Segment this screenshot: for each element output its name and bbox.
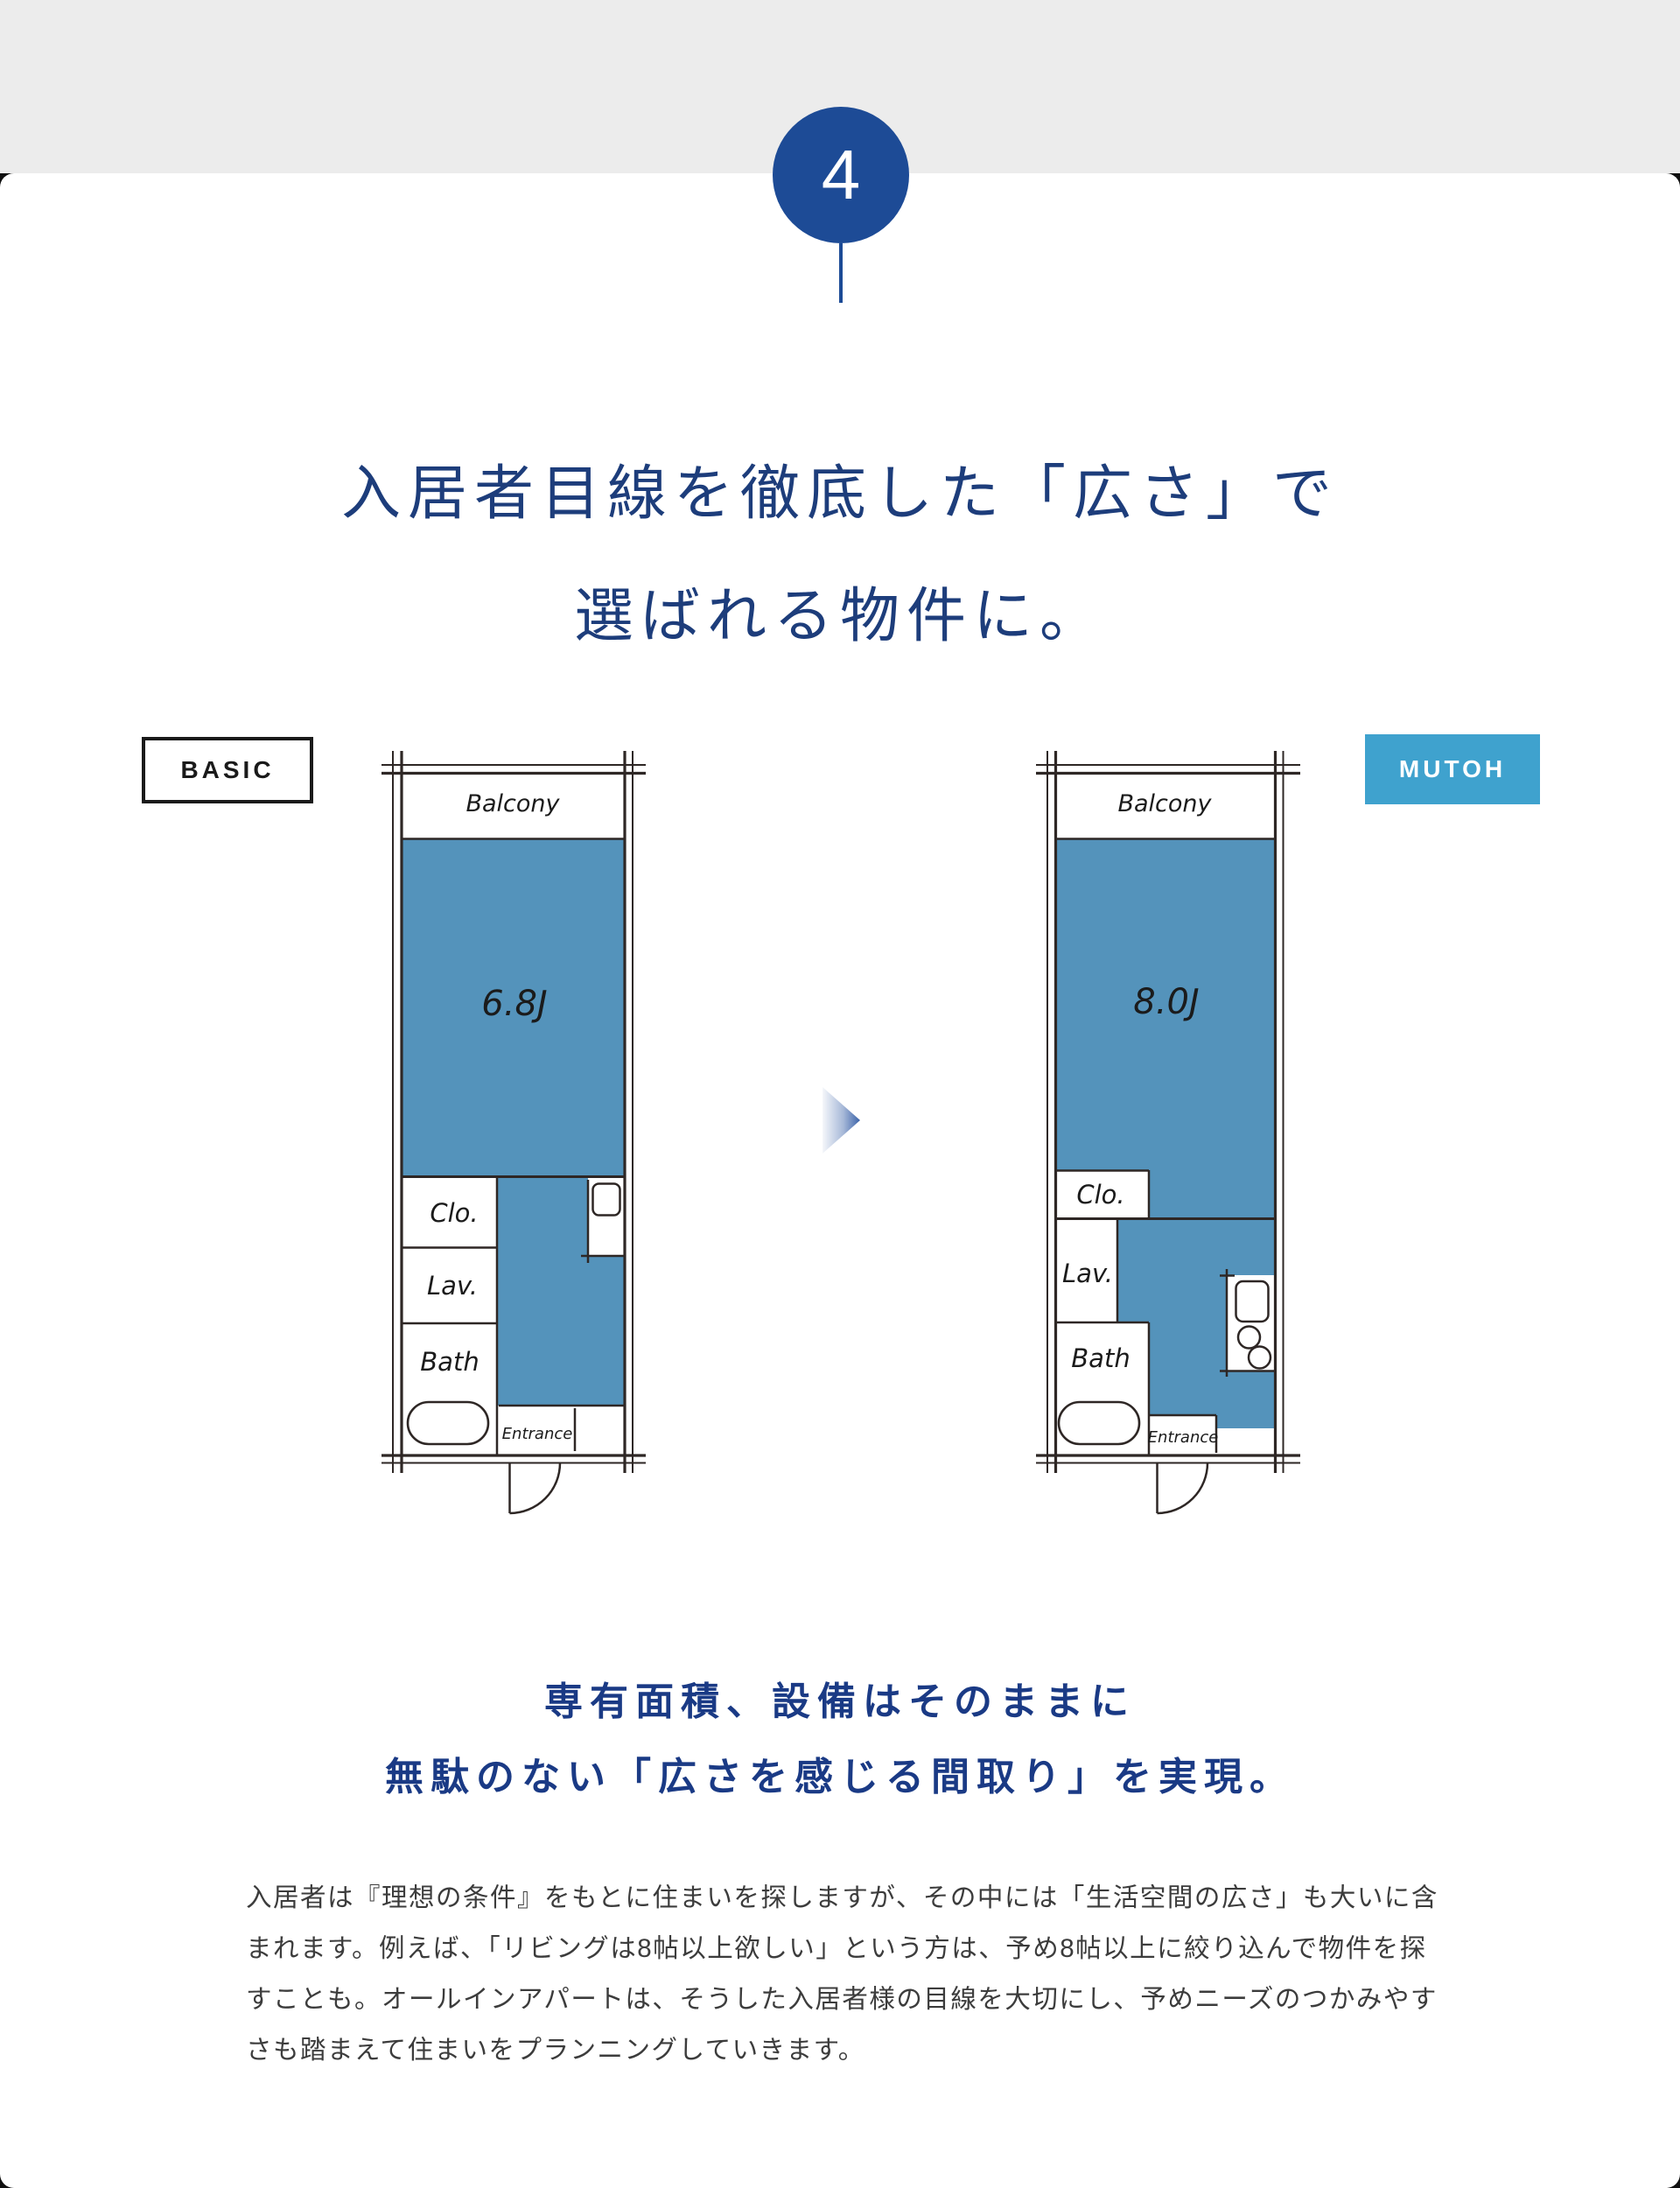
mutoh-bathtub-icon	[1059, 1402, 1139, 1444]
basic-label: BASIC	[142, 737, 313, 803]
mutoh-floorplan: Balcony 8.0J Clo. Lav. Bath Entrance	[1032, 735, 1312, 1532]
basic-floorplan: Balcony 6.8J Clo. Lav. Bath Entrance	[376, 735, 656, 1532]
mutoh-label: MUTOH	[1365, 734, 1540, 804]
basic-closet-label: Clo.	[430, 1198, 478, 1228]
title-line-1: 入居者目線を徹底した「広さ」で	[341, 460, 1339, 527]
mutoh-entrance-label: Entrance	[1148, 1428, 1219, 1447]
section-subtitle: 専有面積、設備はそのままに 無駄のない「広さを感じる間取り」を実現。	[0, 1665, 1680, 1815]
subtitle-line-1: 専有面積、設備はそのままに	[544, 1680, 1136, 1723]
description-paragraph: 入居者は『理想の条件』をもとに住まいを探しますが、その中には「生活空間の広さ」も…	[246, 1873, 1443, 2076]
mutoh-closet-label: Clo.	[1076, 1180, 1124, 1210]
mutoh-door-swing-icon	[1158, 1463, 1208, 1514]
mutoh-lavatory-label: Lav.	[1062, 1259, 1113, 1288]
step-number: 4	[822, 140, 861, 210]
basic-bathtub-icon	[408, 1402, 488, 1444]
basic-room-size-label: 6.8J	[481, 984, 547, 1024]
basic-bath-label: Bath	[420, 1347, 479, 1377]
step-connector-line	[839, 243, 843, 303]
basic-lavatory-label: Lav.	[427, 1271, 478, 1301]
basic-door-swing-icon	[510, 1463, 561, 1514]
basic-balcony-label: Balcony	[465, 790, 560, 817]
mutoh-room-size-label: 8.0J	[1133, 982, 1199, 1022]
basic-label-text: BASIC	[180, 756, 274, 784]
mutoh-label-text: MUTOH	[1399, 755, 1506, 783]
step-badge: 4	[773, 107, 909, 243]
basic-room-fill	[403, 839, 626, 1406]
title-line-2: 選ばれる物件に。	[574, 583, 1106, 649]
mutoh-balcony-label: Balcony	[1117, 790, 1212, 817]
section-title: 入居者目線を徹底した「広さ」で 選ばれる物件に。	[0, 432, 1680, 677]
mutoh-bath-label: Bath	[1071, 1343, 1130, 1373]
subtitle-line-2: 無駄のない「広さを感じる間取り」を実現。	[385, 1756, 1295, 1799]
basic-entrance-label: Entrance	[502, 1425, 573, 1443]
